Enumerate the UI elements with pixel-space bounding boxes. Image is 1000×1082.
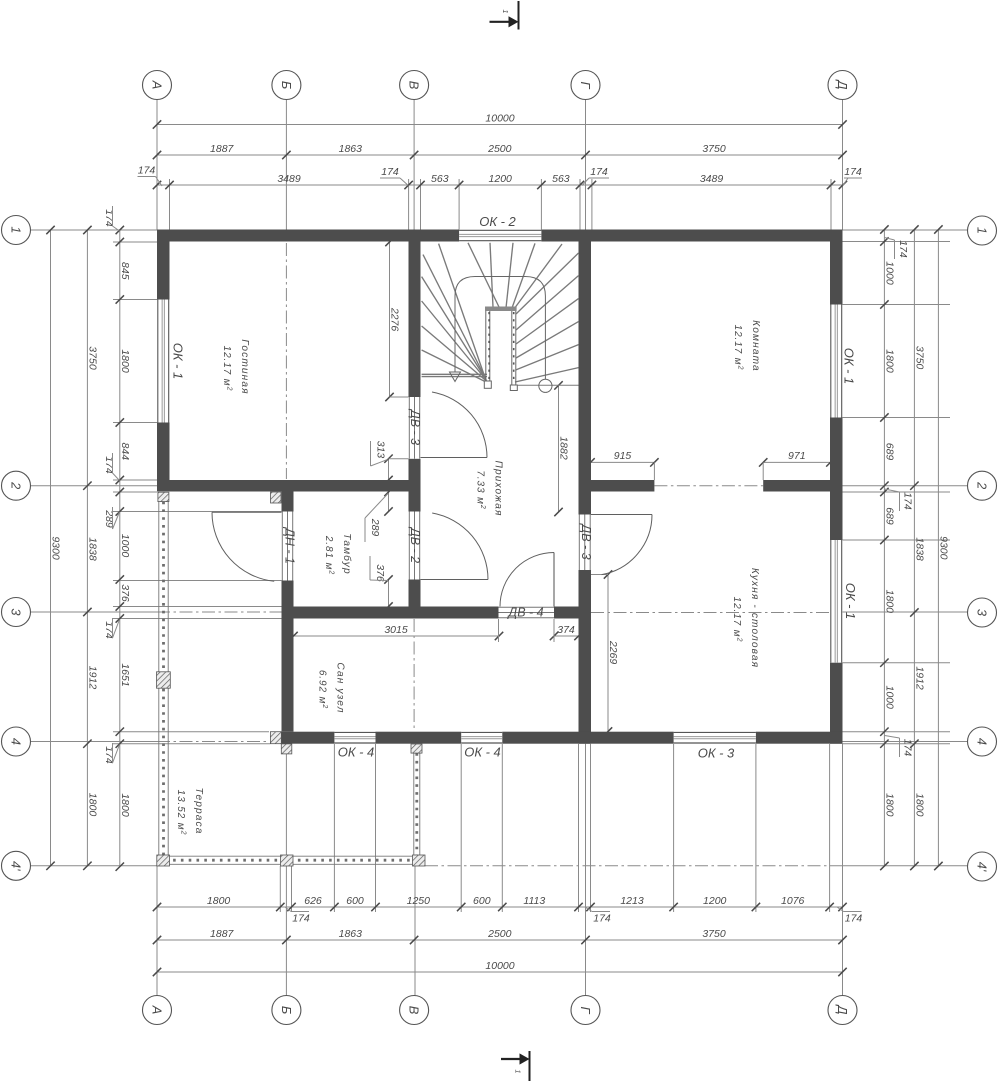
svg-text:1882: 1882 <box>558 436 570 460</box>
svg-text:Г: Г <box>578 1007 593 1015</box>
svg-text:2: 2 <box>975 481 990 489</box>
svg-text:12.17 м2: 12.17 м2 <box>732 325 744 371</box>
svg-text:Кухня - столовая: Кухня - столовая <box>749 568 760 668</box>
svg-text:915: 915 <box>614 450 632 462</box>
svg-text:В: В <box>407 81 422 90</box>
svg-text:Сан узел: Сан узел <box>335 662 346 713</box>
svg-text:Б: Б <box>279 1006 294 1014</box>
svg-text:374: 374 <box>557 624 575 636</box>
svg-text:3750: 3750 <box>87 346 99 370</box>
svg-text:4': 4' <box>9 861 24 871</box>
svg-text:844: 844 <box>119 443 131 461</box>
svg-text:4: 4 <box>975 738 990 745</box>
svg-text:3489: 3489 <box>700 173 724 185</box>
svg-text:376: 376 <box>374 564 386 582</box>
svg-text:1800: 1800 <box>207 895 231 907</box>
svg-text:10000: 10000 <box>485 112 514 124</box>
svg-text:1: 1 <box>975 227 990 234</box>
svg-text:1213: 1213 <box>620 895 644 907</box>
svg-text:ОК - 3: ОК - 3 <box>698 746 735 761</box>
svg-text:3750: 3750 <box>914 346 926 370</box>
svg-text:3750: 3750 <box>702 143 726 155</box>
svg-text:1863: 1863 <box>339 928 363 940</box>
svg-text:1838: 1838 <box>87 537 99 561</box>
svg-text:6.92 м2: 6.92 м2 <box>317 670 329 709</box>
svg-text:В: В <box>407 1006 422 1015</box>
svg-text:563: 563 <box>431 173 449 185</box>
svg-text:12.17 м2: 12.17 м2 <box>731 597 743 643</box>
svg-text:174: 174 <box>902 492 914 510</box>
svg-text:2269: 2269 <box>607 640 619 665</box>
svg-text:ДВ - 4: ДВ - 4 <box>506 606 543 620</box>
svg-text:1: 1 <box>514 1070 521 1074</box>
svg-text:2: 2 <box>9 481 24 489</box>
svg-text:1863: 1863 <box>339 143 363 155</box>
svg-text:4: 4 <box>9 738 24 745</box>
svg-text:ОК - 1: ОК - 1 <box>843 583 858 620</box>
svg-text:1838: 1838 <box>914 537 926 561</box>
svg-text:9300: 9300 <box>50 536 62 560</box>
svg-text:1: 1 <box>501 10 508 14</box>
svg-text:Тамбур: Тамбур <box>341 533 353 575</box>
svg-text:376: 376 <box>119 584 131 602</box>
svg-text:174: 174 <box>138 165 156 177</box>
svg-text:971: 971 <box>788 450 806 462</box>
svg-text:ДВ - 3: ДВ - 3 <box>408 408 422 445</box>
svg-text:ДВ - 3: ДВ - 3 <box>579 522 593 559</box>
svg-text:689: 689 <box>884 443 896 461</box>
svg-text:174: 174 <box>590 166 608 178</box>
svg-text:А: А <box>150 1005 165 1015</box>
svg-text:1800: 1800 <box>87 793 99 817</box>
svg-text:3489: 3489 <box>277 173 301 185</box>
svg-text:Комната: Комната <box>750 320 761 372</box>
svg-text:Б: Б <box>279 81 294 89</box>
svg-text:174: 174 <box>593 913 611 925</box>
svg-text:1200: 1200 <box>703 895 727 907</box>
svg-text:1887: 1887 <box>210 143 235 155</box>
svg-text:1076: 1076 <box>781 895 805 907</box>
svg-text:1000: 1000 <box>884 261 896 285</box>
svg-text:3015: 3015 <box>384 624 408 636</box>
svg-text:1113: 1113 <box>523 895 545 907</box>
svg-text:Г: Г <box>578 82 593 90</box>
svg-text:4': 4' <box>975 862 990 872</box>
svg-text:1000: 1000 <box>119 534 131 558</box>
svg-text:313: 313 <box>375 441 387 459</box>
svg-text:ОК - 4: ОК - 4 <box>338 745 375 760</box>
svg-text:845: 845 <box>119 262 131 280</box>
svg-text:10000: 10000 <box>485 960 514 972</box>
svg-text:13.52 м2: 13.52 м2 <box>175 790 187 836</box>
svg-text:1250: 1250 <box>407 895 431 907</box>
svg-text:174: 174 <box>902 739 914 757</box>
svg-text:563: 563 <box>552 173 570 185</box>
svg-text:Прихожая: Прихожая <box>493 460 504 516</box>
svg-text:ОК - 4: ОК - 4 <box>464 745 501 760</box>
svg-text:174: 174 <box>103 209 115 227</box>
svg-text:ОК - 2: ОК - 2 <box>479 214 516 229</box>
svg-text:174: 174 <box>381 166 399 178</box>
svg-text:2276: 2276 <box>389 307 401 332</box>
svg-text:1800: 1800 <box>914 793 926 817</box>
svg-text:1800: 1800 <box>884 590 896 614</box>
svg-text:1912: 1912 <box>87 666 99 690</box>
svg-text:3: 3 <box>975 609 990 616</box>
svg-text:1651: 1651 <box>119 663 131 686</box>
svg-text:1800: 1800 <box>884 349 896 373</box>
svg-text:174: 174 <box>292 913 310 925</box>
svg-text:9300: 9300 <box>938 536 950 560</box>
svg-text:3: 3 <box>9 608 24 615</box>
svg-text:289: 289 <box>369 518 381 537</box>
svg-text:1800: 1800 <box>119 793 131 817</box>
svg-text:2.81 м2: 2.81 м2 <box>323 535 335 575</box>
svg-text:12.17 м2: 12.17 м2 <box>221 346 233 392</box>
svg-text:689: 689 <box>884 507 896 525</box>
svg-text:1912: 1912 <box>914 666 926 690</box>
svg-text:1200: 1200 <box>489 173 513 185</box>
svg-text:Гостиная: Гостиная <box>239 339 250 394</box>
svg-text:289: 289 <box>103 509 115 528</box>
svg-text:174: 174 <box>845 913 863 925</box>
svg-text:2500: 2500 <box>487 928 512 940</box>
svg-text:1000: 1000 <box>884 686 896 710</box>
svg-text:2500: 2500 <box>487 143 512 155</box>
svg-text:1: 1 <box>9 226 24 233</box>
svg-text:1800: 1800 <box>119 349 131 373</box>
svg-text:1887: 1887 <box>210 928 235 940</box>
svg-text:1800: 1800 <box>884 793 896 817</box>
svg-text:7.33 м2: 7.33 м2 <box>475 470 487 509</box>
svg-text:Терраса: Терраса <box>193 787 204 834</box>
svg-text:Д: Д <box>835 1003 850 1014</box>
svg-text:174: 174 <box>897 240 909 258</box>
svg-text:ДН - 1: ДН - 1 <box>283 526 297 564</box>
svg-text:ДВ - 2: ДВ - 2 <box>408 526 422 563</box>
svg-text:626: 626 <box>304 895 322 907</box>
svg-text:600: 600 <box>346 895 364 907</box>
svg-text:600: 600 <box>473 895 491 907</box>
svg-text:174: 174 <box>844 166 862 178</box>
svg-text:ОК - 1: ОК - 1 <box>842 348 857 385</box>
svg-text:174: 174 <box>103 456 115 474</box>
svg-text:А: А <box>150 80 165 90</box>
svg-text:Д: Д <box>835 78 850 89</box>
svg-text:ОК - 1: ОК - 1 <box>171 343 186 380</box>
svg-text:3750: 3750 <box>702 928 726 940</box>
